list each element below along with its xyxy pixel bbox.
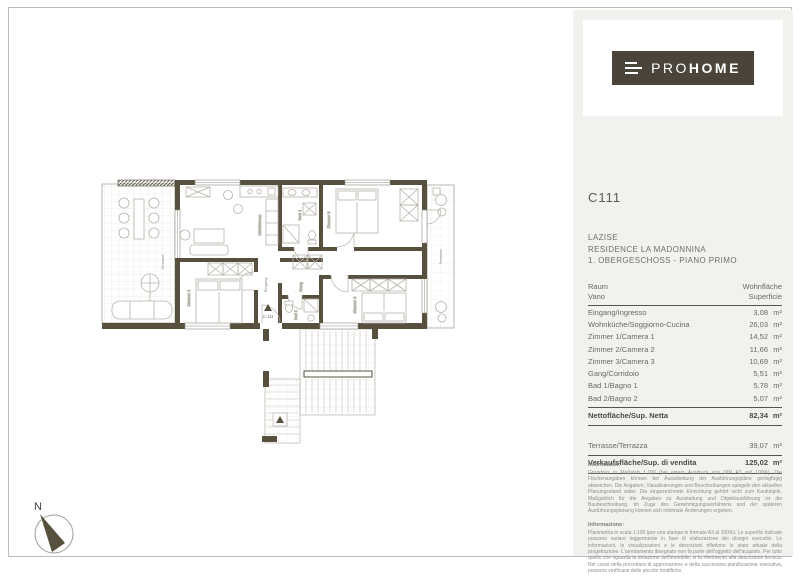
prohome-logo: PROHOME [612,51,754,85]
unit-code: C111 [588,190,621,205]
menu-lines-icon [625,62,642,74]
table-row: Gang/Corridoio5,51m² [588,367,782,379]
header-vano: Vano [588,292,608,302]
north-compass: N [14,492,78,560]
north-label: N [34,501,42,513]
table-header: Raum Vano Wohnfläche Superficie [588,282,782,302]
unit-marker-label: C-111 [263,314,274,319]
room-zimmer1: Zimmer 1 [186,263,252,323]
room-label-gang: Gang [298,282,303,292]
area-table: Raum Vano Wohnfläche Superficie Eingang/… [588,282,782,474]
table-row: Zimmer 1/Camera 114,52m² [588,331,782,343]
room-label-zimmer2: Zimmer 2 [352,296,357,314]
table-row: Zimmer 3/Camera 310,69m² [588,355,782,367]
table-row: Eingang/Ingresso3,08m² [588,306,782,318]
table-row: Wohnküche/Soggiorno-Cucina26,03m² [588,318,782,330]
logo-text-home: HOME [689,60,741,76]
info-panel: PROHOME C111 LAZISE RESIDENCE LA MADONNI… [573,10,793,556]
room-label-bad2: Bad 2 [294,310,298,319]
terrace-left: Terrasse [102,180,175,323]
header-raum: Raum [588,282,608,292]
note-body-it: Planimetria in scala 1:100 (per una stam… [588,530,782,575]
room-label-terrace-left: Terrasse [160,254,165,270]
elevator-icon [273,413,287,426]
table-row: Bad 2/Bagno 25,07m² [588,392,782,404]
room-zimmer2: Zimmer 2 [352,279,406,323]
room-bad1: Bad 1 [283,188,317,244]
room-bad2: Bad 2 [285,299,318,321]
table-row: Zimmer 2/Camera 211,66m² [588,343,782,355]
room-zimmer3: Zimmer 3 [326,189,418,233]
north-needle [40,514,65,552]
room-label-zimmer1: Zimmer 1 [186,289,191,307]
room-label-zimmer3: Zimmer 3 [326,211,331,229]
note-body-de: Grundriss in Maßstab 1:100 (bei einem Au… [588,470,782,515]
room-label-eingang: Eingang [263,278,268,293]
logo-box: PROHOME [583,20,783,116]
header-wohnflaeche: Wohnfläche [743,282,782,292]
note-title-it: Informazione: [588,522,782,528]
terrace-right: Terrasse [427,185,454,328]
logo-text: PROHOME [651,60,741,76]
room-label-living: Kü/Wohnen [257,215,262,236]
disclaimer-notes: Information: Grundriss in Maßstab 1:100 … [588,462,782,582]
stairwell [262,329,378,443]
header-superficie: Superficie [743,292,782,302]
floor-plan: Terrasse Terrasse [90,165,470,455]
location-town: LAZISE [588,232,737,244]
room-label-bad1: Bad 1 [297,209,302,220]
logo-text-pro: PRO [651,60,689,76]
location-block: LAZISE RESIDENCE LA MADONNINA 1. OBERGES… [588,232,737,267]
location-floor: 1. OBERGESCHOSS - PIANO PRIMO [588,255,737,267]
net-area-row: Nettofläche/Sup. Netta82,34m² [588,408,782,422]
room-label-terrace-right: Terrasse [438,249,443,265]
note-title-de: Information: [588,462,782,468]
table-row: Bad 1/Bagno 15,78m² [588,380,782,392]
room-living: Kü/Wohnen [180,186,278,255]
location-residence: RESIDENCE LA MADONNINA [588,244,737,256]
terrace-area-row: Terrasse/Terrazza39,07m² [588,439,782,451]
room-eingang: Eingang C-111 [263,278,274,319]
